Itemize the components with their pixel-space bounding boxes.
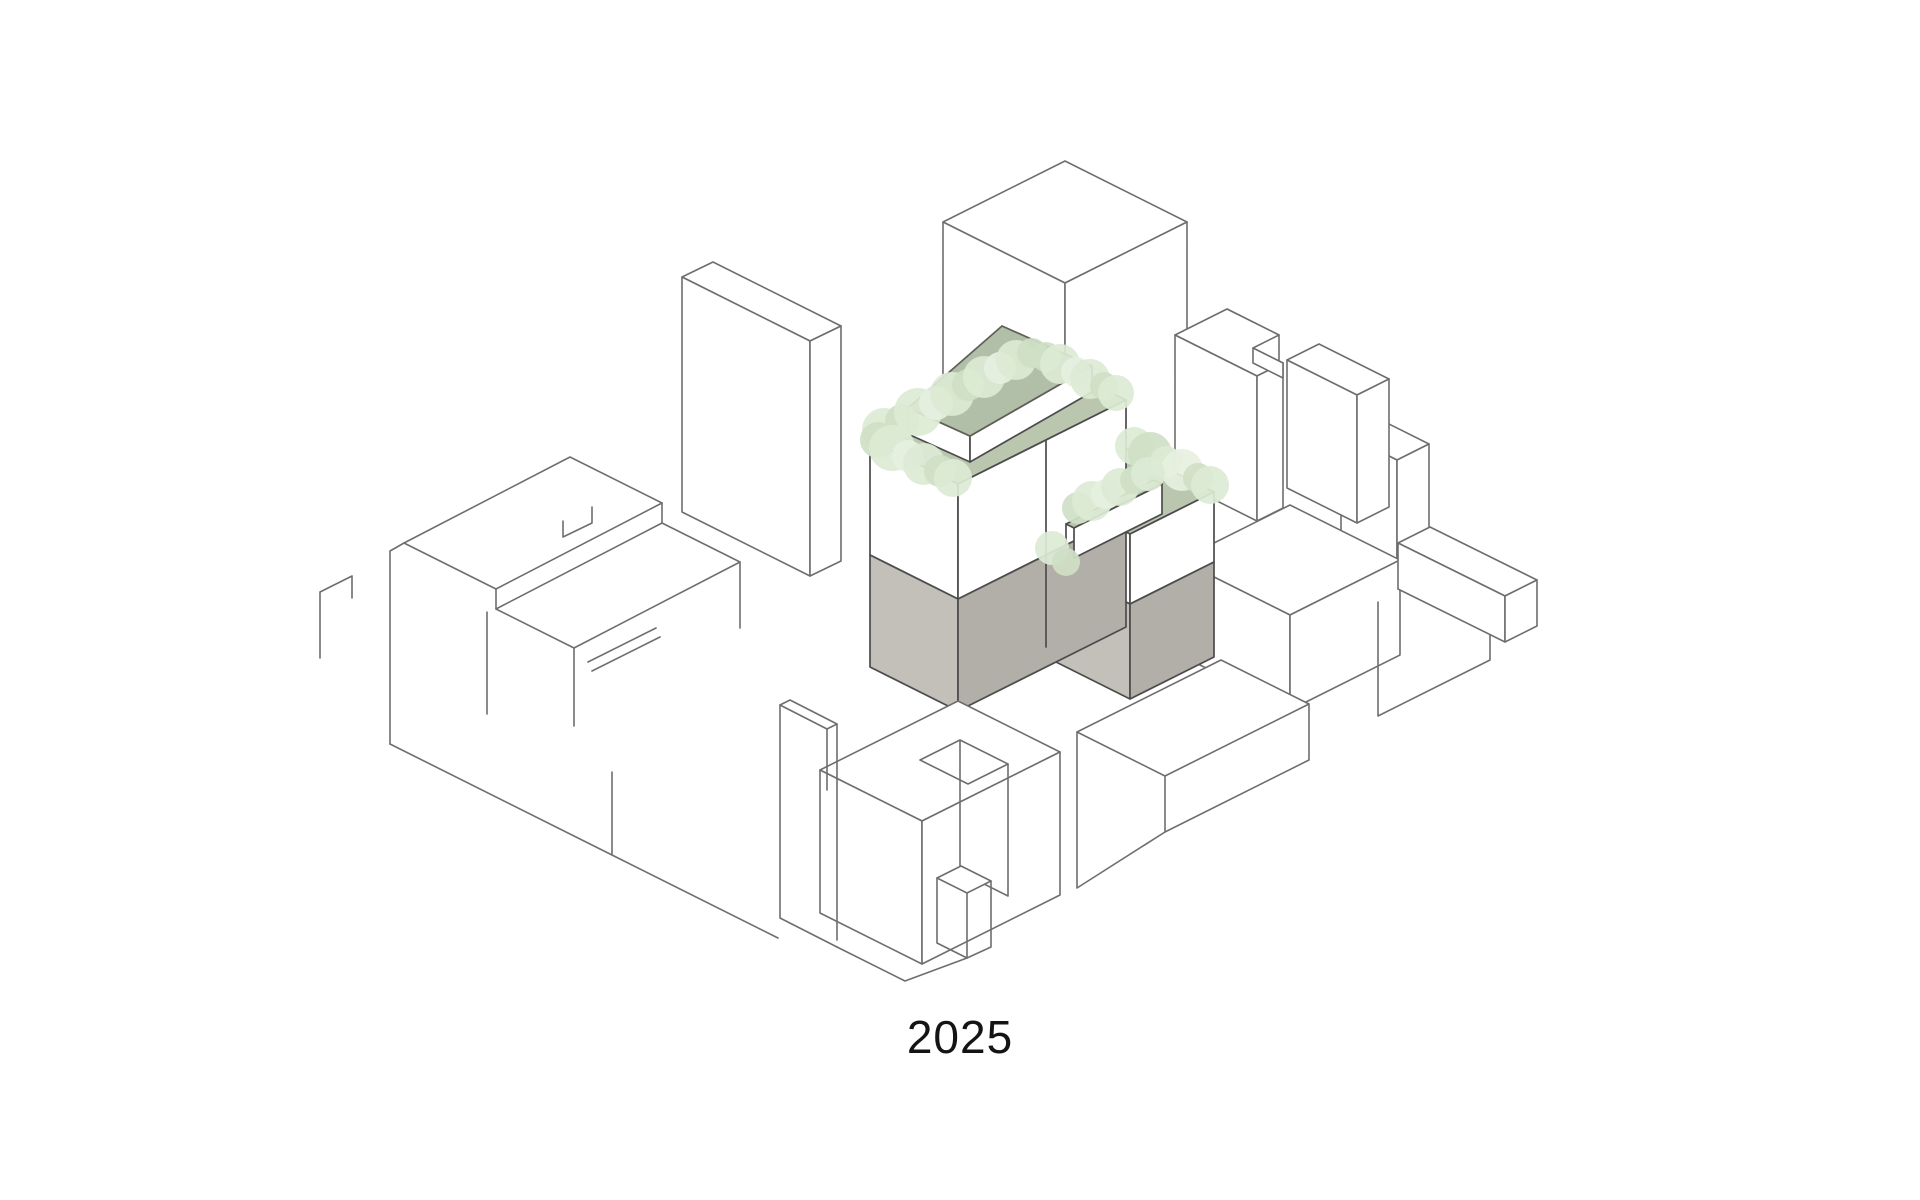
slab-front-wall xyxy=(810,326,841,576)
context-block-south xyxy=(820,701,1060,981)
tree-icon xyxy=(934,459,972,497)
east-slab2-front-wall xyxy=(1357,379,1389,523)
sw-left-step xyxy=(320,543,404,744)
tree-icon xyxy=(1131,457,1165,491)
context-low-bar-east xyxy=(1398,527,1537,642)
tree-icon xyxy=(1052,548,1080,576)
year-label: 2025 xyxy=(0,1014,1920,1060)
context-slab-northwest xyxy=(682,262,841,576)
fin-top xyxy=(780,700,837,729)
l-tower-front-wall xyxy=(1257,363,1283,521)
tree-icon xyxy=(1191,466,1229,504)
context-block-southwest xyxy=(320,457,778,938)
tree-icon xyxy=(1098,375,1134,411)
context-prism-southeast xyxy=(1077,660,1309,888)
